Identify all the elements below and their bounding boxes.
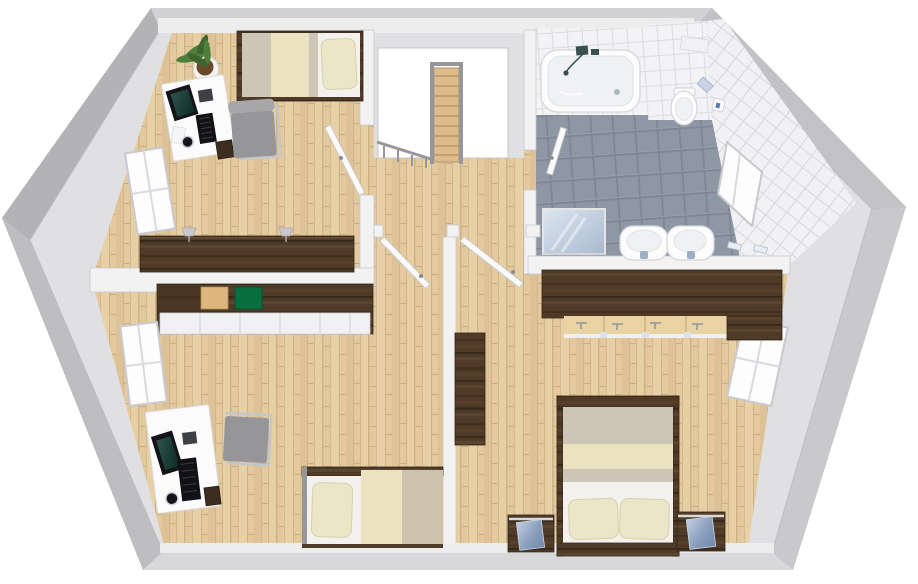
toilet-seat xyxy=(676,98,693,121)
floor-plan-canvas: 3D floor plan rendering — attic storey w… xyxy=(0,0,918,584)
bed2-frame-bottom xyxy=(302,544,443,548)
chair1-seat xyxy=(231,111,277,159)
bed3-pillow-right xyxy=(619,498,669,540)
threshold-master-bedroom xyxy=(459,225,526,237)
glass-front-box-left xyxy=(516,520,544,551)
office-chair-1 xyxy=(228,98,281,159)
wall-bedroom2-master xyxy=(443,237,456,548)
wall-hall-south-post xyxy=(447,225,459,237)
wardrobe3-right-section xyxy=(727,316,782,340)
wardrobe-master xyxy=(542,270,782,340)
wall-hall-south-jamb-right xyxy=(526,225,540,237)
bed1-pillow xyxy=(321,38,358,90)
under-desk-container-1 xyxy=(216,140,234,159)
threshold-bathroom xyxy=(524,150,536,190)
bed3-side-left xyxy=(557,396,563,556)
wardrobe3-handle-1 xyxy=(600,332,607,338)
wardrobe3-top xyxy=(542,270,782,318)
bathtub xyxy=(541,45,640,112)
bed3-blanket-cream xyxy=(563,444,673,469)
bed3-pillow-left xyxy=(568,498,618,540)
wardrobe3-handle-3 xyxy=(684,332,691,338)
wardrobe2-shelf-band xyxy=(160,313,370,334)
nightstand-right xyxy=(677,512,725,551)
threshold-bedroom-top-left xyxy=(360,125,374,195)
nightstand-left xyxy=(508,515,554,552)
single-bed-1 xyxy=(237,31,363,101)
door-bathroom-handle xyxy=(550,156,554,160)
wall-hall-bathroom-upper xyxy=(524,30,536,150)
wardrobe3-handle-2 xyxy=(642,332,649,338)
staircase xyxy=(434,68,459,162)
double-bed xyxy=(557,396,679,556)
dresser xyxy=(455,333,485,445)
stair-railing-left xyxy=(430,64,434,164)
door-master-handle xyxy=(511,270,515,274)
bed1-blanket xyxy=(271,33,309,97)
wardrobe-bedroom2 xyxy=(157,284,373,334)
mug-2 xyxy=(165,492,178,505)
floor-hallway xyxy=(374,158,524,225)
bed2-blanket-cream xyxy=(361,470,402,546)
washbasin-right-bowl xyxy=(674,230,706,252)
bathtub-drain xyxy=(614,89,620,95)
wall-hall-south-jamb-left xyxy=(374,225,383,237)
toilet-paper-holder xyxy=(712,98,725,112)
basin-faucet-left xyxy=(640,251,648,259)
basin-faucet-right xyxy=(687,251,695,259)
stairwell xyxy=(377,48,508,168)
stair-railing-right xyxy=(459,64,463,164)
door-bedroom2-handle xyxy=(419,274,423,278)
sideboard-body xyxy=(140,236,354,272)
bed2-blanket-beige xyxy=(402,470,443,546)
door-bedroom1-handle xyxy=(339,156,343,160)
bed3-headboard xyxy=(557,543,679,556)
chair2-seat xyxy=(223,416,269,463)
washbasin-left-bowl xyxy=(627,230,661,252)
mouse-pad-2 xyxy=(182,431,197,445)
hand-shower-icon xyxy=(563,70,568,75)
office-chair-2 xyxy=(223,413,272,465)
bed3-footboard xyxy=(557,396,679,407)
glass-front-box-right xyxy=(686,517,715,550)
bed3-duvet-fold xyxy=(563,469,673,482)
floor-plan-stage: 3D floor plan rendering — attic storey w… xyxy=(0,0,918,584)
bathtub-basin xyxy=(548,56,633,106)
wall-band-bottom xyxy=(143,552,793,570)
bed2-pillow xyxy=(311,482,353,537)
storage-box-tan xyxy=(201,287,228,309)
mouse-pad-1 xyxy=(198,89,214,103)
bed2-side-rail xyxy=(302,467,307,548)
storage-box-green xyxy=(235,287,262,309)
under-desk-container-2 xyxy=(204,486,221,506)
stair-railing-top xyxy=(430,62,463,66)
single-bed-2 xyxy=(302,467,443,548)
bath-mixer xyxy=(591,49,599,55)
bed3-duvet-top xyxy=(563,407,673,444)
threshold-bedroom-bottom-left xyxy=(383,225,447,237)
mirror-cabinet xyxy=(543,209,605,254)
